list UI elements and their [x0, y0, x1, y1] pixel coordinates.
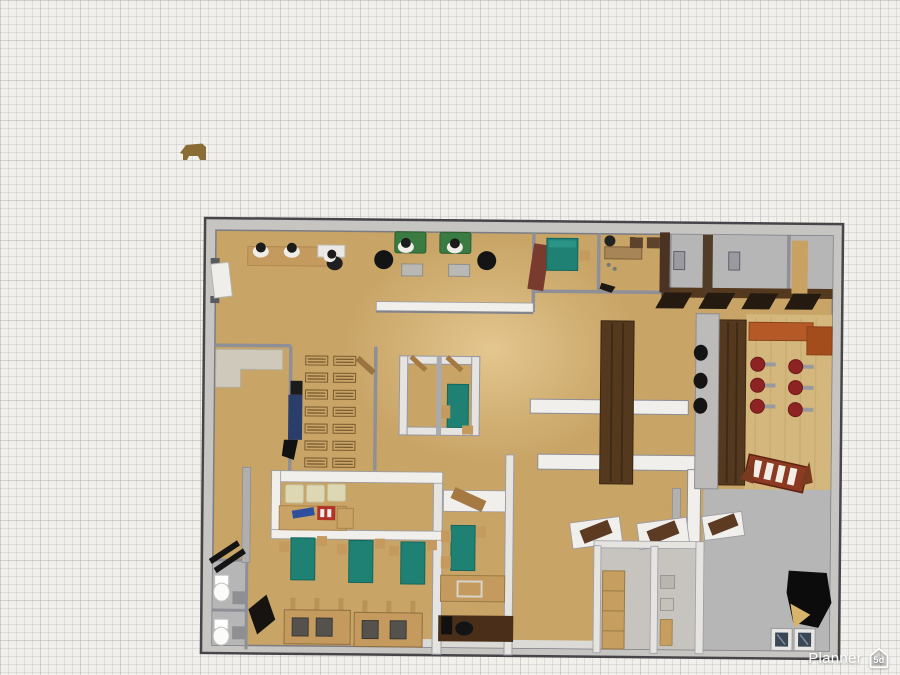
- armchair-black[interactable]: [477, 251, 496, 270]
- floor-plan-scene: [0, 0, 900, 675]
- watermark: Planner 5d: [808, 647, 891, 669]
- wall-stripe: [791, 241, 808, 294]
- chair[interactable]: [476, 527, 486, 538]
- toilet[interactable]: [213, 575, 229, 601]
- dark-cabinet[interactable]: [441, 616, 452, 634]
- massage-table[interactable]: [451, 525, 475, 570]
- cushion[interactable]: [306, 485, 324, 502]
- treatment-table[interactable]: [447, 384, 468, 427]
- fixture[interactable]: [660, 598, 673, 610]
- door-dark[interactable]: [702, 235, 713, 292]
- armchair-black[interactable]: [374, 250, 393, 269]
- washing-machine[interactable]: [771, 628, 792, 650]
- svg-text:5d: 5d: [873, 655, 884, 665]
- watermark-label: Planner: [808, 650, 862, 667]
- cushion[interactable]: [285, 485, 303, 503]
- cushion[interactable]: [327, 484, 345, 501]
- cabinet-small[interactable]: [660, 619, 672, 645]
- stool[interactable]: [580, 251, 590, 261]
- center-small-room: [399, 355, 480, 436]
- chair[interactable]: [441, 405, 450, 418]
- coffee-table[interactable]: [402, 264, 423, 276]
- floor-bottomright: [702, 489, 831, 651]
- wall-hall-top: [376, 302, 533, 314]
- dark-partition: [659, 232, 670, 292]
- guest-chair[interactable]: [647, 237, 660, 248]
- salon-left-wall: [693, 314, 720, 489]
- tall-cabinet[interactable]: [602, 571, 625, 649]
- door-threshold[interactable]: [443, 487, 505, 512]
- low-table[interactable]: [279, 506, 353, 531]
- planner5d-badge-icon: 5d: [867, 647, 891, 669]
- floor-topright-rooms: [669, 234, 833, 294]
- bed-teal[interactable]: [547, 238, 578, 270]
- toilet[interactable]: [213, 619, 229, 645]
- office-chair[interactable]: [604, 235, 615, 246]
- lounge-room: [279, 484, 353, 531]
- massage-area: [279, 536, 437, 585]
- fixture[interactable]: [661, 575, 675, 588]
- door-threshold[interactable]: [702, 511, 745, 540]
- wall-panel[interactable]: [729, 252, 740, 270]
- coffee-table[interactable]: [449, 264, 470, 276]
- sink[interactable]: [232, 591, 245, 604]
- delivery-truck[interactable]: [180, 144, 206, 161]
- salon-counter[interactable]: [749, 322, 813, 341]
- chair[interactable]: [441, 530, 451, 542]
- desk-with-drawers[interactable]: [284, 598, 350, 645]
- counter[interactable]: [440, 575, 504, 602]
- wall-left-stub: [242, 467, 251, 562]
- sink[interactable]: [232, 626, 245, 639]
- office-desk[interactable]: [605, 247, 642, 259]
- chair[interactable]: [441, 556, 451, 568]
- desk-with-drawers[interactable]: [354, 600, 422, 647]
- salon-counter-corner[interactable]: [807, 327, 832, 355]
- wall-panel[interactable]: [674, 251, 685, 269]
- chair[interactable]: [462, 425, 473, 434]
- guest-chair[interactable]: [630, 237, 643, 248]
- planner5d-canvas: Planner 5d: [0, 0, 900, 675]
